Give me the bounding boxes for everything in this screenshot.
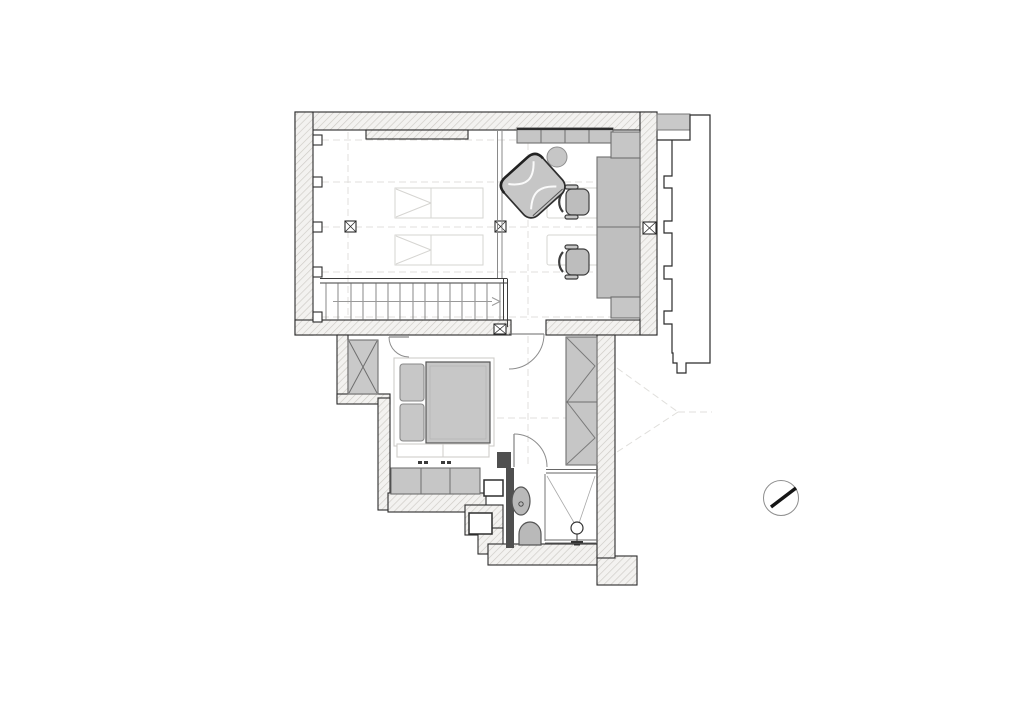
- column-icon: [643, 222, 656, 234]
- skylight-opening: [395, 235, 483, 265]
- floor-plan-drawing: [0, 0, 1024, 724]
- neighbor-facade-outline: [657, 115, 710, 373]
- toilet: [519, 522, 541, 545]
- door-stair-to-bedroom: [509, 334, 544, 369]
- closet-wall-left: [337, 335, 348, 402]
- appliance-box: [484, 480, 503, 496]
- washbasin: [512, 487, 530, 515]
- skylight-opening: [395, 188, 483, 218]
- pillow: [400, 404, 424, 441]
- desk-bottom-return: [611, 297, 640, 318]
- door-closet: [389, 337, 409, 357]
- north-arrow: [764, 481, 799, 516]
- desk: [597, 132, 640, 318]
- door-bedroom-to-bath: [514, 434, 547, 467]
- floor-drain-icon: [571, 522, 583, 534]
- low-cabinet-row: [391, 468, 480, 494]
- left-wall-pilasters: [313, 135, 322, 322]
- wall-top: [295, 112, 657, 130]
- glass-partition: [498, 130, 503, 278]
- column-icon: [494, 324, 506, 334]
- office-area: [497, 128, 640, 318]
- bed: [394, 358, 494, 457]
- office-chair: [559, 245, 589, 279]
- neighbor-building: [657, 115, 710, 373]
- wall-top-thick-step: [366, 130, 468, 139]
- wall-cabinet-row: [517, 128, 613, 143]
- understair-storage: [348, 340, 378, 394]
- column-icon: [345, 221, 356, 232]
- divider-block: [497, 452, 511, 468]
- pillow: [400, 364, 424, 401]
- shower: [545, 476, 597, 545]
- column-icon: [495, 221, 506, 232]
- party-wall: [657, 114, 690, 130]
- floor-plan-sheet: [0, 0, 1024, 724]
- socket-marks: [418, 461, 451, 464]
- mattress: [426, 362, 490, 443]
- bath-step-block: [597, 556, 637, 585]
- wall-left: [295, 112, 313, 335]
- wall-under-stair: [295, 320, 511, 335]
- desk-top-return: [611, 132, 640, 158]
- wall-niche: [469, 513, 492, 534]
- wardrobe: [566, 337, 597, 465]
- wall-right-lower: [597, 335, 615, 558]
- side-table: [547, 147, 567, 167]
